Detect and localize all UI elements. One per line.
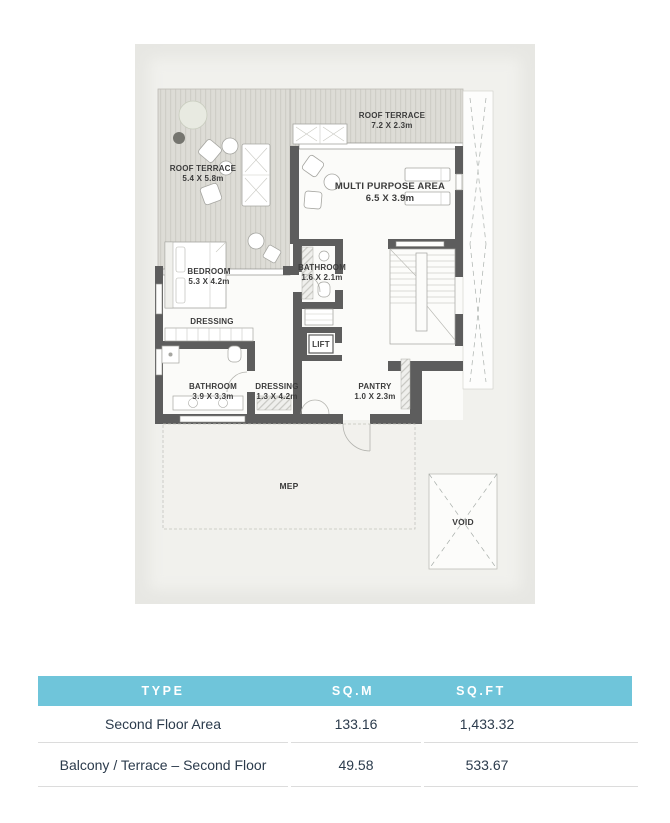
label-lift: LIFT [312, 340, 330, 349]
table-header-row: TYPE SQ.M SQ.FT [38, 676, 632, 706]
floor-plan: ROOF TERRACE 7.2 X 2.3m ROOF TERRACE 5.4… [135, 44, 535, 604]
terrace-bench [293, 124, 347, 144]
area-table: TYPE SQ.M SQ.FT Second Floor Area 133.16… [38, 676, 632, 787]
label-bedroom-dims: 5.3 X 4.2m [188, 277, 229, 286]
table-row: Balcony / Terrace – Second Floor 49.58 5… [38, 743, 632, 787]
pantry-shelf [401, 359, 410, 409]
label-pantry: PANTRY [358, 382, 392, 391]
mep-area [163, 424, 415, 529]
floor-plan-svg: ROOF TERRACE 7.2 X 2.3m ROOF TERRACE 5.4… [135, 44, 535, 604]
label-mep: MEP [279, 481, 298, 491]
cell-sqft: 533.67 [424, 743, 638, 787]
label-bathroom-main-dims: 3.9 X 3.3m [192, 392, 233, 401]
table-row: Second Floor Area 133.16 1,433.32 [38, 706, 632, 743]
label-roof-terrace-top: ROOF TERRACE [359, 111, 426, 120]
page: ROOF TERRACE 7.2 X 2.3m ROOF TERRACE 5.4… [0, 0, 670, 823]
label-bathroom-small-dims: 1.6 X 2.1m [301, 273, 342, 282]
label-dressing-lower-dims: 1.3 X 4.2m [256, 392, 297, 401]
label-roof-terrace-top-dims: 7.2 X 2.3m [371, 121, 412, 130]
hall-cabinet [305, 309, 333, 325]
label-pantry-dims: 1.0 X 2.3m [354, 392, 395, 401]
spot-icon [173, 132, 185, 144]
cell-sqm: 49.58 [291, 743, 421, 787]
label-bathroom-main: BATHROOM [189, 382, 237, 391]
label-bathroom-small: BATHROOM [298, 263, 346, 272]
col-header-type: TYPE [38, 676, 288, 706]
label-roof-terrace-left-dims: 5.4 X 5.8m [182, 174, 223, 183]
col-header-sqft: SQ.FT [418, 676, 632, 706]
col-header-sqm: SQ.M [288, 676, 418, 706]
stairs [390, 249, 455, 344]
planter-icon [179, 101, 207, 129]
label-roof-terrace-left: ROOF TERRACE [170, 164, 237, 173]
label-void: VOID [452, 517, 474, 527]
label-bedroom: BEDROOM [187, 267, 230, 276]
cell-type: Balcony / Terrace – Second Floor [38, 743, 288, 787]
cell-sqm: 133.16 [291, 706, 421, 743]
label-multi-purpose-dims: 6.5 X 3.9m [366, 193, 414, 204]
label-dressing-lower: DRESSING [255, 382, 298, 391]
label-multi-purpose: MULTI PURPOSE AREA [335, 181, 445, 192]
cell-sqft: 1,433.32 [424, 706, 638, 743]
label-dressing-upper: DRESSING [190, 317, 233, 326]
cell-type: Second Floor Area [38, 706, 288, 743]
side-void-strip [463, 91, 493, 389]
